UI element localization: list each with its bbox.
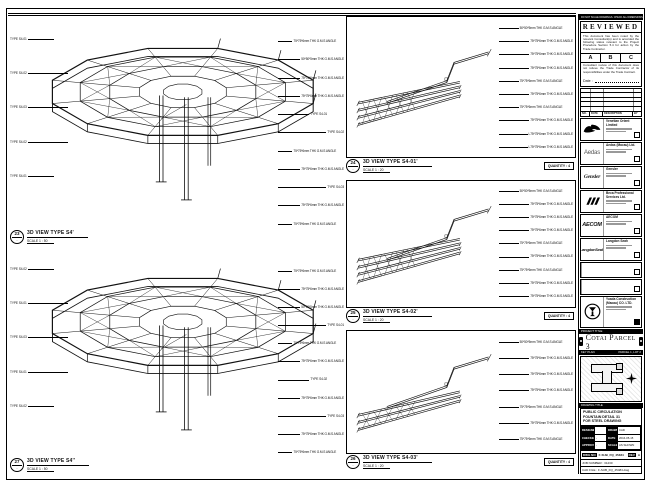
leader-line <box>28 269 54 270</box>
leader-line <box>28 176 54 177</box>
member-label: TYPE S4-01 <box>10 175 27 178</box>
site-block <box>616 388 623 395</box>
parcel-label: PARCEL 1, LOT 2 <box>619 350 642 354</box>
member-label: 75*75*6mm THK G.M.S ANGLE <box>293 223 336 226</box>
reviewed-stamp: REVIEWED This document has been noted by… <box>580 21 642 87</box>
member-label: 75*75*6mm THK G.M.S ANGLE <box>530 373 573 376</box>
member-label: 75*75*6mm THK G.M.S ANGLE <box>530 255 573 258</box>
rev-label: REV <box>628 453 636 457</box>
view-scale: SCALE 1 : 20 <box>363 168 390 173</box>
steel-member-drawing <box>349 333 499 451</box>
leader-line <box>278 224 292 225</box>
member-label: 75*75*6mm THK G.M.S ANGLE <box>293 270 336 273</box>
col-no: NO. <box>581 112 590 116</box>
scale-label: SCALE <box>607 442 618 450</box>
dwg-no-row: DWG NO F-SUB_FQ_45484 REV A <box>580 451 642 460</box>
view-title-text: 3D VIEW TYPE S4-03' <box>363 455 432 463</box>
member-label: TYPE S4-02 <box>10 268 27 271</box>
drawing-title-line: FOR STEEL DRAWING <box>583 419 639 423</box>
detail-sheet-ref: - <box>348 462 358 467</box>
member-type-labels-left: TYPE S4-02TYPE S4-01TYPE S4-03TYPE S4-01… <box>10 268 68 408</box>
panel-frame: 50*50*5mm THK G.M.S ANGLE75*75*6mm THK G… <box>346 330 576 454</box>
leader-line <box>499 390 529 391</box>
designed-value <box>595 427 607 435</box>
member-label: L75*75*6mm THK G.M.S ANGLE <box>529 146 573 149</box>
view-title: 27- 3D VIEW TYPE S4''SCALE 1 : 50 <box>10 458 160 472</box>
leader-line <box>278 114 309 115</box>
view-scale: SCALE 1 : 20 <box>363 318 390 323</box>
company-block-aedas: Aedas Aedas (Macau) Ltd. <box>580 142 642 165</box>
member-label: 75*75*6mm THK G.M.S ANGLE <box>301 204 344 207</box>
leader-line <box>278 151 292 152</box>
leader-line <box>278 361 300 362</box>
sheet-note-bar: DO NOT SCALE DRAWINGS. CHECK ALL DIMENSI… <box>579 14 643 20</box>
approval-grid: DESIGNED DRAWN CAD CHECKED - DATE 2016-0… <box>580 426 642 451</box>
leader-line <box>278 307 300 308</box>
company-checkbox <box>634 156 640 162</box>
reviewed-body-1: This document has been noted by the rele… <box>581 33 641 53</box>
member-label: 75*75*6mm THK G.M.S ANGLE <box>301 288 344 291</box>
ornament-icon <box>579 337 583 346</box>
view-scale: SCALE 1 : 50 <box>27 467 54 472</box>
member-label: 75*75*6mm THK G.M.S ANGLE <box>530 229 573 232</box>
member-label: TYPE S4-03 <box>10 336 27 339</box>
key-plan-label: KEY PLAN <box>581 350 595 354</box>
status-option-a: A <box>581 54 601 62</box>
drawn-value: CAD <box>618 427 641 435</box>
leader-line <box>278 187 326 188</box>
member-size-labels-right: 75*75*6mm THK G.M.S ANGLE50*50*5mm THK G… <box>278 40 344 226</box>
view-title-text: 3D VIEW TYPE S4-01' <box>363 159 432 167</box>
panel-3d-view-s4-01: 50*50*5mm THK G.M.S ANGLE75*75*6mm THK G… <box>346 16 576 176</box>
quantity-tag: QUANTITY : 4 <box>544 458 574 466</box>
leader-line <box>28 39 54 40</box>
leader-line <box>499 407 519 408</box>
member-label: 75*75*6mm THK G.M.S ANGLE <box>293 150 336 153</box>
designed-label: DESIGNED <box>581 427 595 435</box>
beca-logo <box>581 191 603 212</box>
project-name-row: Cotai Parcel 3 <box>579 334 643 350</box>
date-value: 2016-05-15 <box>618 435 641 443</box>
cad-file-value: CAD FILE : F-SUB_FQ_45484.dwg <box>582 468 629 472</box>
top-rule <box>8 13 576 14</box>
member-label: 75*75*6mm THK G.M.S ANGLE <box>530 389 573 392</box>
member-label: 75*75*6mm THK G.M.S ANGLE <box>530 216 573 219</box>
ornament-icon <box>639 337 643 346</box>
member-label: 75*75*6mm THK G.M.S ANGLE <box>530 93 573 96</box>
leader-line <box>499 94 529 95</box>
view-title-text: 3D VIEW TYPE S4-02' <box>363 309 432 317</box>
member-label: TYPE S4-01 <box>327 324 344 327</box>
member-size-labels: 50*50*5mm THK G.M.S ANGLE75*75*6mm THK G… <box>499 27 573 149</box>
company-block-aecom: AECOM AECOM <box>580 214 642 237</box>
member-label: 75*75*6mm THK G.M.S ANGLE <box>530 282 573 285</box>
member-label: 50*50*5mm THK G.M.S ANGLE <box>520 341 563 344</box>
detail-sheet-ref: - <box>348 316 358 321</box>
leader-line <box>499 28 519 29</box>
company-checkbox <box>634 204 640 210</box>
member-label: 75*75*6mm THK G.M.S ANGLE <box>293 342 336 345</box>
leader-line <box>28 372 68 373</box>
leader-line <box>499 230 529 231</box>
member-label: 75*75*6mm THK G.M.S ANGLE <box>301 433 344 436</box>
leader-line <box>278 59 300 60</box>
member-size-labels-right: 75*75*6mm THK G.M.S ANGLE75*75*6mm THK G… <box>278 270 344 454</box>
company-block-empty <box>580 279 642 295</box>
member-label: TYPE S4-02 <box>10 72 27 75</box>
leader-line <box>499 191 519 192</box>
detail-bubble: 24- <box>346 159 360 173</box>
leader-line <box>278 169 300 170</box>
member-label: 75*75*6mm THK G.M.S ANGLE <box>301 168 344 171</box>
member-label: 75*75*6mm THK G.M.S ANGLE <box>520 106 563 109</box>
view-scale: SCALE 1 : 20 <box>363 464 390 469</box>
member-label: 50*50*5mm THK G.M.S ANGLE <box>301 306 344 309</box>
drawing-title: PUBLIC CIRCULATION FOUNTAIN DETAIL 31 FO… <box>580 408 642 426</box>
leader-line <box>499 134 528 135</box>
contractor-name-2: (Macau) CO. LTD. <box>606 302 639 306</box>
member-label: 75*75*6mm THK G.M.S ANGLE <box>530 119 573 122</box>
view-title: 24- 3D VIEW TYPE S4-01'SCALE 1 : 20 QUAN… <box>346 159 574 173</box>
date-label: Date : <box>583 79 593 83</box>
checked-label: CHECKED <box>581 435 595 443</box>
member-label: 50*50*5mm THK G.M.S ANGLE <box>520 27 563 30</box>
project-name: Cotai Parcel 3 <box>586 333 637 351</box>
member-label: 75*75*6mm THK G.M.S ANGLE <box>520 242 563 245</box>
view-title-text: 3D VIEW TYPE S4' <box>27 230 88 238</box>
leader-line <box>278 416 326 417</box>
approved-label: APPROVED <box>581 442 595 450</box>
north-arrow-icon <box>626 373 637 384</box>
cad-file-row: CAD FILE : F-SUB_FQ_45484.dwg <box>580 467 642 474</box>
member-label: 75*75*6mm THK G.M.S ANGLE <box>530 357 573 360</box>
company-block-langdonseah: LangdonSeah Langdon Seah <box>580 238 642 261</box>
view-title-text: 3D VIEW TYPE S4'' <box>27 458 89 466</box>
scale-value: AS SHOWN <box>618 442 641 450</box>
detail-bubble: 23- <box>10 230 24 244</box>
view-title: 23- 3D VIEW TYPE S4'SCALE 1 : 50 <box>10 230 160 244</box>
company-name: Beca Professional Services Ltd. <box>606 192 639 199</box>
member-label: TYPE S4-01 <box>10 371 27 374</box>
leader-line <box>278 205 300 206</box>
member-label: 75*75*6mm THK G.M.S ANGLE <box>301 95 344 98</box>
site-block <box>616 363 623 370</box>
approved-value: - <box>595 442 607 450</box>
leader-line <box>499 217 529 218</box>
dwg-no-value: F-SUB_FQ_45484 <box>599 453 624 457</box>
company-checkbox <box>634 286 640 292</box>
leader-line <box>499 41 529 42</box>
company-name: Aedas (Macau) Ltd. <box>606 144 639 148</box>
job-number-row: JOB NUMBER : 31230 <box>580 460 642 467</box>
reviewed-body-2: Consultant review of this document does … <box>581 63 641 76</box>
leader-line <box>278 132 326 133</box>
status-option-c: C <box>621 54 641 62</box>
leader-line <box>278 41 292 42</box>
detail-sheet-ref: - <box>348 166 358 171</box>
member-label: TYPE S4-02 <box>327 131 344 134</box>
member-label: 75*75*6mm THK G.M.S ANGLE <box>301 397 344 400</box>
company-name: Langdon Seah <box>606 240 639 244</box>
member-label: 75*75*6mm THK G.M.S ANGLE <box>293 451 336 454</box>
company-checkbox <box>634 228 640 234</box>
leader-line <box>28 107 68 108</box>
member-label: 75*75*6mm THK G.M.S ANGLE <box>301 360 344 363</box>
member-type-labels-left: TYPE S4-01TYPE S4-02TYPE S4-03TYPE S4-02… <box>10 38 68 178</box>
key-plan-map <box>580 356 642 402</box>
col-description: DESCRIPTION <box>603 112 633 116</box>
rev-value: A <box>638 453 640 457</box>
dwg-no-label: DWG NO <box>582 453 597 457</box>
key-plan-bar: KEY PLAN PARCEL 1, LOT 2 <box>579 350 643 355</box>
contractor-logo <box>581 297 603 327</box>
leader-line <box>499 296 529 297</box>
gensler-logo: Gensler <box>581 167 603 188</box>
member-label: TYPE S4-03 <box>10 106 27 109</box>
company-checkbox <box>634 180 640 186</box>
title-block: DO NOT SCALE DRAWINGS. CHECK ALL DIMENSI… <box>578 14 643 474</box>
member-label: TYPE S4-02 <box>10 405 27 408</box>
company-name: AECOM <box>606 216 639 220</box>
company-name: Gensler <box>606 168 639 172</box>
leader-line <box>499 439 519 440</box>
leader-line <box>278 434 300 435</box>
leader-line <box>499 120 529 121</box>
member-size-labels: 50*50*5mm THK G.M.S ANGLE75*75*6mm THK G… <box>499 190 573 298</box>
col-by: BY <box>633 112 641 116</box>
leader-line <box>278 452 292 453</box>
leader-line <box>499 54 529 55</box>
leader-line <box>278 398 300 399</box>
member-label: TYPE S4-01 <box>10 302 27 305</box>
leader-line <box>278 325 326 326</box>
leader-line <box>278 343 292 344</box>
revision-table-header: NO. DATE DESCRIPTION BY <box>581 112 641 116</box>
leader-line <box>28 337 68 338</box>
member-label: 75*75*6mm THK G.M.S ANGLE <box>301 77 344 80</box>
quantity-tag: QUANTITY : 4 <box>544 162 574 170</box>
member-label: 75*75*6mm THK G.M.S ANGLE <box>530 53 573 56</box>
leader-line <box>499 342 519 343</box>
detail-bubble: 25- <box>346 309 360 323</box>
leader-line <box>278 78 300 79</box>
leader-line <box>278 289 300 290</box>
member-label: 75*75*6mm THK G.M.S ANGLE <box>520 80 563 83</box>
company-name: Venetian Orient Limited <box>606 120 639 127</box>
leader-line <box>28 142 68 143</box>
leader-line <box>499 423 529 424</box>
reviewed-title: REVIEWED <box>581 22 641 33</box>
leader-line <box>499 68 529 69</box>
status-options: A B C <box>581 53 641 63</box>
member-size-labels: 50*50*5mm THK G.M.S ANGLE75*75*6mm THK G… <box>499 341 573 441</box>
view-scale: SCALE 1 : 50 <box>27 239 54 244</box>
drawing-sheet: TYPE S4-01TYPE S4-02TYPE S4-03TYPE S4-02… <box>0 0 650 488</box>
date-line: Date : <box>581 76 641 86</box>
view-title: 26- 3D VIEW TYPE S4-03'SCALE 1 : 20 QUAN… <box>346 455 574 469</box>
leader-line <box>499 204 529 205</box>
aedas-logo: Aedas <box>581 143 603 164</box>
view-3d-type-s4-top: TYPE S4-01TYPE S4-02TYPE S4-03TYPE S4-02… <box>10 16 344 244</box>
steel-member-drawing <box>349 19 499 155</box>
panel-3d-view-s4-02: 50*50*5mm THK G.M.S ANGLE75*75*6mm THK G… <box>346 180 576 326</box>
member-label: TYPE S4-02 <box>310 378 327 381</box>
company-block-beca: Beca Professional Services Ltd. <box>580 190 642 213</box>
job-number-value: JOB NUMBER : 31230 <box>582 461 613 465</box>
leader-line <box>499 257 529 258</box>
panel-3d-view-s4-03: 50*50*5mm THK G.M.S ANGLE75*75*6mm THK G… <box>346 330 576 472</box>
member-label: 75*75*6mm THK G.M.S ANGLE <box>520 438 563 441</box>
col-date: DATE <box>590 112 603 116</box>
leader-line <box>499 283 529 284</box>
leader-line <box>499 81 519 82</box>
company-checkbox <box>634 252 640 258</box>
panel-frame: 50*50*5mm THK G.M.S ANGLE75*75*6mm THK G… <box>346 16 576 158</box>
status-option-b: B <box>601 54 621 62</box>
member-label: 50*50*5mm THK G.M.S ANGLE <box>301 58 344 61</box>
member-label: 75*75*6mm THK G.M.S ANGLE <box>520 269 563 272</box>
date-label: DATE <box>607 435 618 443</box>
member-label: TYPE S4-03 <box>327 186 344 189</box>
quantity-tag: QUANTITY : 4 <box>544 312 574 320</box>
member-label: 75*75*6mm THK G.M.S ANGLE <box>530 67 573 70</box>
leader-line <box>278 380 309 381</box>
leader-line <box>499 270 519 271</box>
view-title: 25- 3D VIEW TYPE S4-02'SCALE 1 : 20 QUAN… <box>346 309 574 323</box>
panel-frame: 50*50*5mm THK G.M.S ANGLE75*75*6mm THK G… <box>346 180 576 308</box>
detail-sheet-ref: - <box>12 465 22 470</box>
company-block-gensler: Gensler Gensler <box>580 166 642 189</box>
company-block-venetian: Venetian Orient Limited <box>580 118 642 141</box>
member-label: L75*75*6mm THK G.M.S ANGLE <box>529 133 573 136</box>
checked-value: - <box>595 435 607 443</box>
member-label: 75*75*6mm THK G.M.S ANGLE <box>530 422 573 425</box>
company-block-empty <box>580 262 642 278</box>
member-label: TYPE S4-03 <box>327 415 344 418</box>
member-label: 75*75*6mm THK G.M.S ANGLE <box>293 40 336 43</box>
langdonseah-logo: LangdonSeah <box>581 239 603 260</box>
member-label: 75*75*6mm THK G.M.S ANGLE <box>530 203 573 206</box>
member-label: TYPE S4-02 <box>10 141 27 144</box>
member-label: TYPE S4-01 <box>310 113 327 116</box>
drawn-label: DRAWN <box>607 427 618 435</box>
member-label: 75*75*6mm THK G.M.S ANGLE <box>530 295 573 298</box>
view-3d-type-s4-bottom: TYPE S4-02TYPE S4-01TYPE S4-03TYPE S4-01… <box>10 246 344 472</box>
leader-line <box>278 271 292 272</box>
detail-bubble: 27- <box>10 458 24 472</box>
detail-bubble: 26- <box>346 455 360 469</box>
leader-line <box>28 406 54 407</box>
leader-line <box>499 107 519 108</box>
detail-sheet-ref: - <box>12 237 22 242</box>
contractor-checkbox <box>634 319 640 325</box>
venetian-lion-logo <box>581 119 603 140</box>
member-label: 50*50*5mm THK G.M.S ANGLE <box>520 190 563 193</box>
member-label: 75*75*6mm THK G.M.S ANGLE <box>520 406 563 409</box>
leader-line <box>499 243 519 244</box>
member-label: 75*75*6mm THK G.M.S ANGLE <box>530 40 573 43</box>
member-label: TYPE S4-01 <box>10 38 27 41</box>
contractor-block: Yuada Construction (Macau) CO. LTD. <box>580 296 642 328</box>
date-dotted-line <box>595 78 639 83</box>
leader-line <box>499 358 529 359</box>
leader-line <box>28 303 68 304</box>
leader-line <box>28 73 68 74</box>
steel-member-drawing <box>349 183 499 305</box>
leader-line <box>499 374 529 375</box>
revision-table: NO. DATE DESCRIPTION BY <box>580 88 642 117</box>
company-checkbox <box>634 132 640 138</box>
aecom-logo: AECOM <box>581 215 603 236</box>
leader-line <box>278 96 300 97</box>
company-checkbox <box>634 269 640 275</box>
leader-line <box>499 147 528 148</box>
